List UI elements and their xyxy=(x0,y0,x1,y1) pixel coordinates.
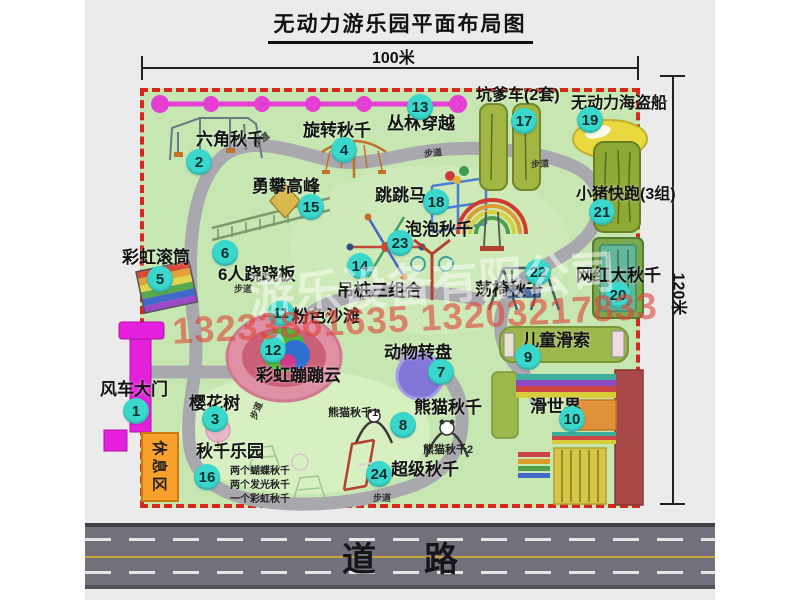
attraction-label-17: 坑爹车(2套) xyxy=(476,87,560,105)
marker-badge-7[interactable]: 7 xyxy=(428,359,454,385)
marker-badge-13[interactable]: 13 xyxy=(407,94,433,120)
sub-label-2: 两个蝴蝶秋千 xyxy=(230,462,290,477)
marker-badge-3[interactable]: 3 xyxy=(202,406,228,432)
path-label-1: 步道 xyxy=(423,145,442,160)
marker-badge-4[interactable]: 4 xyxy=(331,137,357,163)
marker-badge-24[interactable]: 24 xyxy=(366,461,392,487)
marker-badge-10[interactable]: 10 xyxy=(559,406,585,432)
marker-badge-15[interactable]: 15 xyxy=(298,194,324,220)
dim-label-top: 100米 xyxy=(372,44,415,68)
rest-area: 休息区 xyxy=(141,432,179,502)
sub-label-4: 一个彩虹秋千 xyxy=(230,490,290,505)
marker-badge-19[interactable]: 19 xyxy=(577,107,603,133)
attraction-label-5: 彩虹滚筒 xyxy=(122,249,190,268)
park-layout-map: 无动力游乐园平面布局图 100米 120米 xyxy=(0,0,800,600)
dim-label-right: 120米 xyxy=(668,273,692,316)
dim-tick-top-right xyxy=(637,56,639,80)
sub-label-1: 熊猫秋千2 xyxy=(423,441,473,457)
path-label-5: 步道 xyxy=(373,491,391,504)
marker-badge-9[interactable]: 9 xyxy=(515,344,541,370)
attraction-label-16: 秋千乐园 xyxy=(196,443,264,462)
marker-badge-8[interactable]: 8 xyxy=(390,412,416,438)
road: 道路 xyxy=(85,523,715,589)
attraction-label-18: 跳跳马 xyxy=(375,187,426,206)
marker-badge-23[interactable]: 23 xyxy=(387,230,413,256)
attraction-label-11: 粉色沙滩 xyxy=(292,308,360,327)
page-title: 无动力游乐园平面布局图 xyxy=(0,8,800,44)
path-label-2: 步道 xyxy=(531,156,550,170)
attraction-label-14: 吊桩三组合 xyxy=(337,282,422,301)
attraction-label-21: 小猪快跑(3组) xyxy=(576,186,676,204)
marker-badge-14[interactable]: 14 xyxy=(347,253,373,279)
marker-badge-20[interactable]: 20 xyxy=(605,282,631,308)
marker-badge-6[interactable]: 6 xyxy=(212,240,238,266)
marker-badge-17[interactable]: 17 xyxy=(511,108,537,134)
rest-area-label: 休息区 xyxy=(150,440,171,494)
marker-badge-2[interactable]: 2 xyxy=(186,149,212,175)
attraction-label-23: 泡泡秋千 xyxy=(405,221,473,240)
dim-tick-top-left xyxy=(141,56,143,80)
road-label: 道路 xyxy=(85,527,715,585)
sub-label-0: 熊猫秋千1 xyxy=(328,404,378,420)
attraction-label-2: 六角秋千 xyxy=(196,131,264,150)
marker-badge-16[interactable]: 16 xyxy=(194,464,220,490)
marker-badge-12[interactable]: 12 xyxy=(260,337,286,363)
marker-badge-5[interactable]: 5 xyxy=(147,266,173,292)
page-title-text: 无动力游乐园平面布局图 xyxy=(268,8,533,44)
marker-badge-22[interactable]: 22 xyxy=(525,259,551,285)
attraction-label-6: 6人跷跷板 xyxy=(218,266,295,285)
attraction-label-8: 熊猫秋千 xyxy=(414,399,482,418)
dim-tick-right-top xyxy=(660,75,685,77)
marker-badge-11[interactable]: 11 xyxy=(268,300,294,326)
sub-label-3: 两个发光秋千 xyxy=(230,476,290,491)
attraction-label-24: 超级秋千 xyxy=(391,461,459,480)
marker-badge-1[interactable]: 1 xyxy=(123,398,149,424)
marker-badge-18[interactable]: 18 xyxy=(423,189,449,215)
marker-badge-21[interactable]: 21 xyxy=(589,199,615,225)
dim-tick-right-bottom xyxy=(660,503,685,505)
attraction-label-12: 彩虹蹦蹦云 xyxy=(256,367,341,386)
attraction-label-1: 风车大门 xyxy=(100,381,168,400)
